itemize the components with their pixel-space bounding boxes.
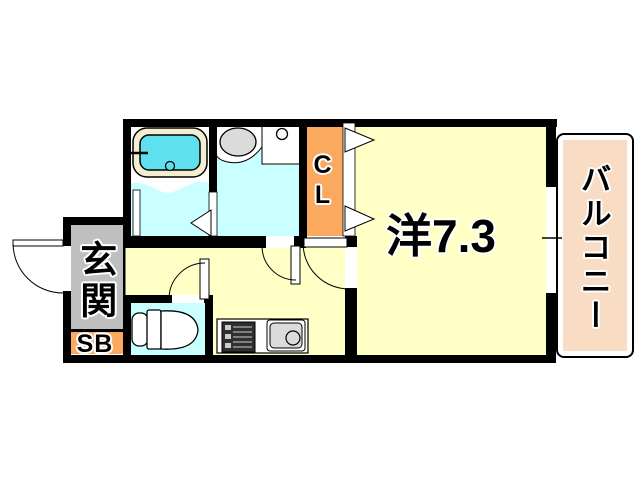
entrance-door-swing-icon bbox=[13, 240, 63, 293]
window-main-room bbox=[546, 187, 556, 293]
kitchen-counter bbox=[217, 319, 308, 353]
bathtub-icon bbox=[126, 128, 208, 177]
wall-right-upper bbox=[546, 119, 556, 187]
shower-panel-icon bbox=[133, 190, 140, 236]
toilet-icon bbox=[132, 310, 198, 349]
opening-main-room bbox=[345, 247, 357, 288]
wall-toilet-right bbox=[205, 295, 213, 362]
washing-machine-pan-icon bbox=[262, 123, 303, 164]
kitchen-sink-icon bbox=[267, 320, 305, 351]
stove-icon bbox=[222, 322, 255, 352]
opening-toilet bbox=[172, 295, 204, 303]
wall-mid-horizontal bbox=[123, 236, 266, 248]
label-western-room: 洋7.3 bbox=[386, 213, 496, 260]
wall-washroom-closet bbox=[299, 123, 307, 240]
label-shoe-box: SB bbox=[68, 332, 122, 358]
wall-left-upper bbox=[123, 119, 131, 245]
label-closet: CL bbox=[309, 151, 335, 211]
opening-washroom bbox=[266, 236, 294, 248]
wall-right-lower bbox=[546, 293, 556, 362]
wall-bath-divider bbox=[209, 123, 217, 192]
wall-top bbox=[123, 119, 557, 127]
drain-icon bbox=[166, 162, 175, 171]
wall-kitchen-main bbox=[345, 288, 357, 362]
entrance-step-line bbox=[123, 245, 126, 299]
label-entrance: 玄関 bbox=[76, 240, 114, 322]
wall-toilet-top bbox=[123, 295, 172, 303]
wall-toilet-left bbox=[123, 295, 131, 362]
opening-entrance bbox=[63, 246, 71, 291]
wall-entrance-top bbox=[63, 217, 131, 225]
wall-bottom bbox=[63, 355, 556, 363]
label-balcony: バルコニー bbox=[577, 163, 609, 333]
floor-plan: 玄関 SB CL 洋7.3 バルコニー bbox=[0, 0, 640, 480]
